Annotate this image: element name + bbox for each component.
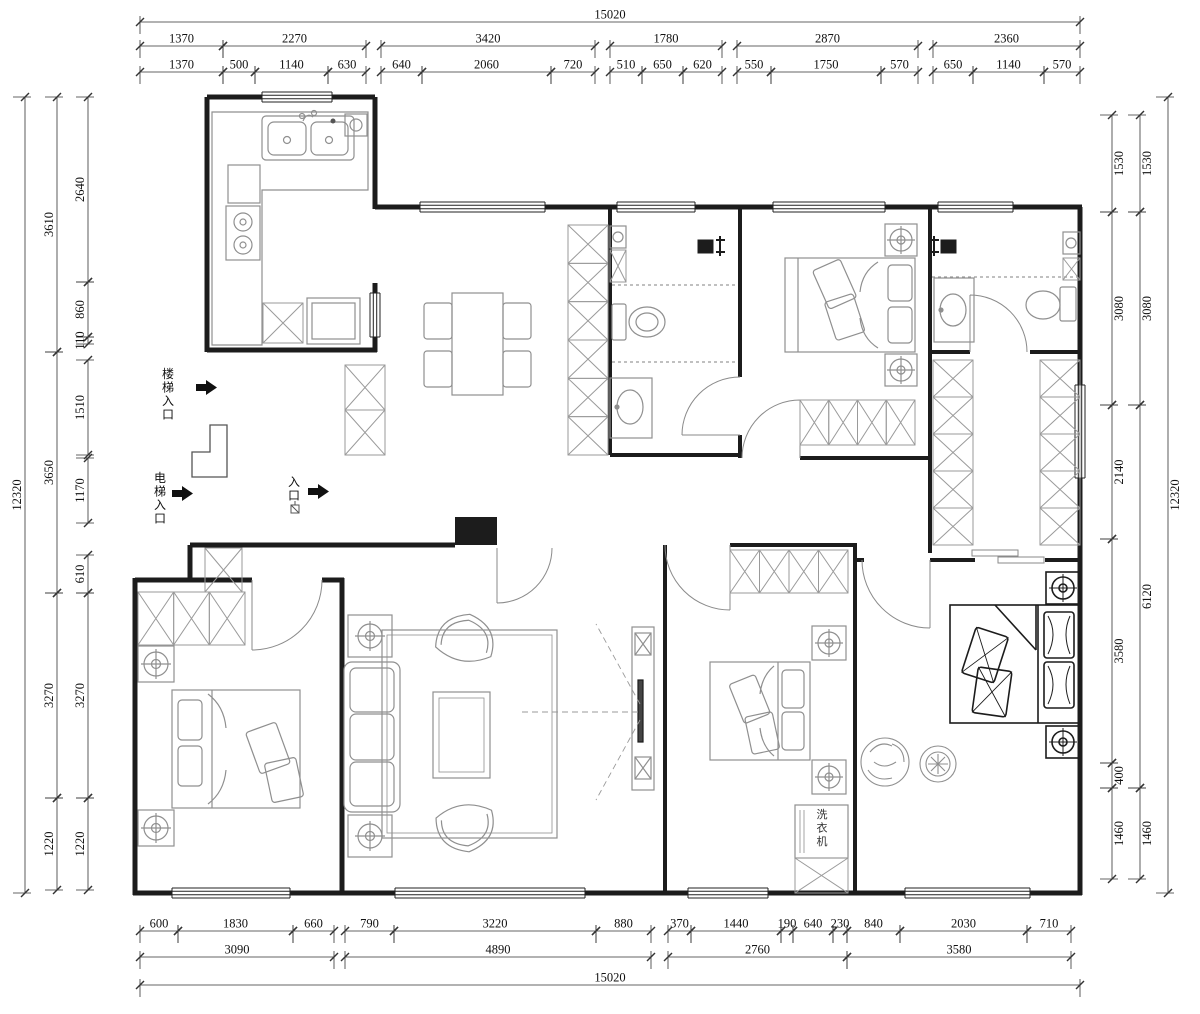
dimension: 12320	[1156, 93, 1182, 897]
dimension: 570	[1040, 58, 1084, 85]
dimension: 620	[679, 58, 726, 85]
dimension: 2640	[73, 93, 94, 286]
dimension-label: 1220	[42, 832, 56, 857]
x-cabinet	[933, 360, 973, 545]
dimension: 1170	[73, 454, 94, 527]
dimension: 1530	[1128, 111, 1154, 216]
pillow	[888, 265, 912, 301]
dimension-label: 660	[304, 917, 323, 931]
dimension-label: 1440	[724, 917, 749, 931]
kitchen-counter	[212, 112, 368, 345]
dimension-label: 610	[73, 565, 87, 584]
dimension: 640	[377, 58, 426, 85]
entrance-marker	[291, 501, 299, 513]
dimension-label: 880	[614, 917, 633, 931]
dimension: 1370	[136, 32, 227, 59]
dimension-annotations: 1502013702270342017802870236013705001140…	[10, 8, 1182, 998]
bed	[172, 690, 300, 808]
dimension-label: 1780	[654, 32, 679, 46]
dimension-label: 1370	[169, 32, 194, 46]
entry-pillar	[455, 517, 497, 545]
dimension-label: 2270	[282, 32, 307, 46]
dimension: 880	[592, 917, 655, 944]
dimension-label: 2030	[951, 917, 976, 931]
x-cabinet	[800, 400, 915, 445]
dimension: 510	[606, 58, 646, 85]
dimension: 3080	[1100, 208, 1126, 409]
dimension: 370	[664, 917, 695, 944]
bedroom4-door	[742, 400, 800, 458]
dimension-label: 3580	[1112, 639, 1126, 664]
tv-sightlines	[520, 624, 640, 800]
dimension: 3580	[1100, 535, 1126, 767]
dimension-label: 190	[778, 917, 797, 931]
pillow	[1044, 662, 1074, 708]
dimension: 500	[219, 58, 259, 85]
dimension: 4890	[341, 943, 655, 970]
dining-set	[424, 293, 531, 395]
pillow	[178, 700, 202, 740]
pillow	[888, 307, 912, 343]
dimension-label: 2360	[994, 32, 1019, 46]
bedroom4-furniture	[785, 224, 917, 386]
dimension: 3650	[42, 348, 63, 597]
bedroom2-door	[665, 545, 730, 610]
dimension-label: 2640	[73, 177, 87, 202]
dimension: 3080	[1128, 208, 1154, 409]
dimension: 1750	[767, 58, 885, 85]
dimension: 1370	[136, 58, 227, 85]
dimension-label: 630	[338, 58, 357, 72]
dimension-label: 15020	[594, 971, 625, 985]
dimension: 6120	[1128, 401, 1154, 792]
sofa	[344, 662, 400, 812]
dimension-label: 3090	[225, 943, 250, 957]
dimension: 710	[1023, 917, 1075, 944]
x-cabinet	[730, 550, 848, 593]
dimension: 2030	[896, 917, 1031, 944]
floor-plan-svg: 1502013702270342017802870236013705001140…	[0, 0, 1200, 1014]
plants	[861, 738, 956, 786]
dimension-label: 4890	[486, 943, 511, 957]
dimension-label: 1170	[73, 478, 87, 503]
dimension-label: 2140	[1112, 460, 1126, 485]
dimension-label: 570	[890, 58, 909, 72]
dimension-label: 1530	[1140, 151, 1154, 176]
dimension-label: 600	[150, 917, 169, 931]
dimension: 2870	[733, 32, 922, 59]
pillow	[782, 670, 804, 708]
dimension-label: 710	[1040, 917, 1059, 931]
living-room	[344, 609, 654, 857]
dimension-label: 650	[944, 58, 963, 72]
dimension: 2140	[1100, 401, 1126, 543]
dimension-label: 1370	[169, 58, 194, 72]
dimension-label: 110	[73, 331, 87, 349]
coffee-table	[433, 692, 490, 778]
dimension-label: 790	[360, 917, 379, 931]
washbasin	[940, 294, 966, 326]
dimension: 650	[638, 58, 687, 85]
dimension-label: 1830	[223, 917, 248, 931]
dimension-label: 640	[804, 917, 823, 931]
kitchen-worktop	[228, 165, 260, 203]
dimension: 1220	[73, 794, 94, 894]
dimension: 3610	[42, 93, 63, 356]
dimension: 790	[341, 917, 398, 944]
dining-table	[452, 293, 503, 395]
dimension: 3270	[73, 589, 94, 802]
stair-entrance-label: 楼梯入口	[162, 366, 174, 422]
pillow	[178, 746, 202, 786]
dimension-label: 510	[617, 58, 636, 72]
dimension: 720	[547, 58, 599, 85]
bedroom1-door	[252, 580, 322, 650]
dimension: 630	[324, 58, 370, 85]
stove	[226, 206, 260, 260]
dimension-label: 6120	[1140, 584, 1154, 609]
text-labels: 楼梯入口电梯入口入口洗衣机	[154, 366, 828, 848]
window	[420, 202, 545, 212]
dimension: 15020	[136, 8, 1084, 35]
dimension-label: 1140	[279, 58, 304, 72]
pillow	[1044, 612, 1074, 658]
dining-chair	[424, 303, 452, 339]
dining-chair	[503, 351, 531, 387]
washing-machine-label: 洗衣机	[817, 808, 828, 848]
x-cabinet	[263, 303, 303, 343]
dimension: 3220	[390, 917, 600, 944]
x-cabinet	[345, 365, 385, 455]
bed	[785, 258, 915, 352]
dimension: 12320	[10, 93, 31, 897]
dimension: 1460	[1128, 784, 1154, 883]
dimension-label: 12320	[1168, 479, 1182, 510]
closet-sliding-door	[972, 550, 1044, 563]
toilet-tank	[1060, 287, 1076, 321]
dimension-label: 640	[392, 58, 411, 72]
dimension-label: 3580	[947, 943, 972, 957]
x-cabinet	[795, 858, 848, 893]
bedroom1-furniture	[138, 646, 304, 846]
window	[905, 888, 1030, 898]
dining-chair	[424, 351, 452, 387]
dimension: 1440	[687, 917, 785, 944]
armchair	[434, 801, 497, 855]
window	[773, 202, 885, 212]
window	[938, 202, 1013, 212]
dimension: 15020	[136, 971, 1084, 998]
window	[262, 92, 332, 102]
dimension-label: 1460	[1112, 821, 1126, 846]
dimension: 660	[289, 917, 338, 944]
dimension: 3270	[42, 589, 63, 802]
dimension-label: 2870	[815, 32, 840, 46]
shower-head-icon	[930, 236, 956, 256]
dimension-label: 3080	[1140, 296, 1154, 321]
dimension: 1510	[73, 356, 94, 459]
shower-head-icon	[698, 236, 725, 256]
dimension: 1530	[1100, 111, 1126, 216]
dimension-label: 720	[564, 58, 583, 72]
dimension-label: 1460	[1140, 821, 1154, 846]
tv	[638, 680, 643, 742]
dimension: 570	[877, 58, 922, 85]
dimension: 2760	[664, 943, 851, 970]
dimension-label: 370	[670, 917, 689, 931]
dimension: 2360	[929, 32, 1084, 59]
dimension: 3090	[136, 943, 338, 970]
window	[688, 888, 768, 898]
armchair	[434, 609, 498, 665]
toilet-bowl	[629, 307, 665, 337]
bed	[950, 605, 1080, 723]
elevator-entrance-label: 电梯入口	[154, 471, 166, 526]
window	[370, 293, 380, 337]
dimension: 3580	[843, 943, 1075, 970]
dimension: 3420	[377, 32, 599, 59]
bed	[710, 662, 810, 760]
stair-arrow-icon	[196, 380, 217, 395]
window	[617, 202, 695, 212]
dimension: 550	[733, 58, 775, 85]
fridge	[307, 298, 360, 344]
dimension-label: 3220	[483, 917, 508, 931]
window	[172, 888, 290, 898]
dimension: 1220	[42, 794, 63, 894]
dimension-label: 12320	[10, 479, 24, 510]
dimension-label: 840	[864, 917, 883, 931]
bathroom2-door	[970, 295, 1027, 352]
x-cabinet	[1040, 360, 1080, 545]
elevator-arrow-icon	[172, 486, 193, 501]
dimension: 1140	[969, 58, 1048, 85]
dimension-label: 230	[831, 917, 850, 931]
kitchen	[212, 111, 368, 346]
bedroom3-furniture	[950, 572, 1080, 758]
dimension-label: 3420	[476, 32, 501, 46]
dimension-label: 500	[230, 58, 249, 72]
dimension: 1140	[251, 58, 332, 85]
dimension-label: 400	[1112, 766, 1126, 785]
x-cabinet	[138, 592, 245, 645]
dimension-label: 2060	[474, 58, 499, 72]
entrance-label: 入口	[288, 475, 300, 503]
dining-chair	[503, 303, 531, 339]
dimension-label: 650	[653, 58, 672, 72]
x-cabinet	[568, 225, 608, 455]
floor-plan-page: 1502013702270342017802870236013705001140…	[0, 0, 1200, 1014]
dimension-label: 1220	[73, 832, 87, 857]
dimension-label: 620	[693, 58, 712, 72]
entry-door	[497, 548, 552, 603]
toilet-tank	[612, 304, 626, 340]
washbasin	[617, 390, 643, 424]
dimension-label: 3270	[73, 683, 87, 708]
dimension: 1780	[606, 32, 726, 59]
pillow	[782, 712, 804, 750]
dimension-label: 3650	[42, 460, 56, 485]
dimension: 840	[843, 917, 904, 944]
dimension-label: 3080	[1112, 296, 1126, 321]
dimension: 2060	[418, 58, 555, 85]
bathroom1	[610, 226, 665, 438]
toilet-bowl	[1026, 291, 1060, 319]
dimension: 650	[929, 58, 977, 85]
bedroom3-door	[862, 560, 930, 628]
dimension-label: 15020	[594, 8, 625, 22]
dimension: 2270	[219, 32, 370, 59]
dimension: 600	[136, 917, 182, 944]
partition-lines	[612, 277, 1078, 362]
bathroom1-door	[682, 377, 740, 435]
x-cabinet	[610, 250, 626, 282]
dimension: 110	[73, 331, 94, 349]
dimension-label: 1750	[814, 58, 839, 72]
dimension-label: 1140	[996, 58, 1021, 72]
dimension-label: 1530	[1112, 151, 1126, 176]
dimension-label: 2760	[745, 943, 770, 957]
stair-outline	[192, 425, 227, 477]
window	[395, 888, 585, 898]
outer-walls	[133, 97, 1082, 895]
dimension: 1460	[1100, 784, 1126, 883]
dimension-label: 550	[745, 58, 764, 72]
x-cabinet	[205, 548, 242, 592]
dimension: 1830	[174, 917, 297, 944]
dimension-label: 3610	[42, 212, 56, 237]
entrance-arrow-icon	[308, 484, 329, 499]
dimension-label: 570	[1053, 58, 1072, 72]
dimension-label: 1510	[73, 395, 87, 420]
dimension-label: 860	[73, 300, 87, 319]
dimension-label: 3270	[42, 683, 56, 708]
